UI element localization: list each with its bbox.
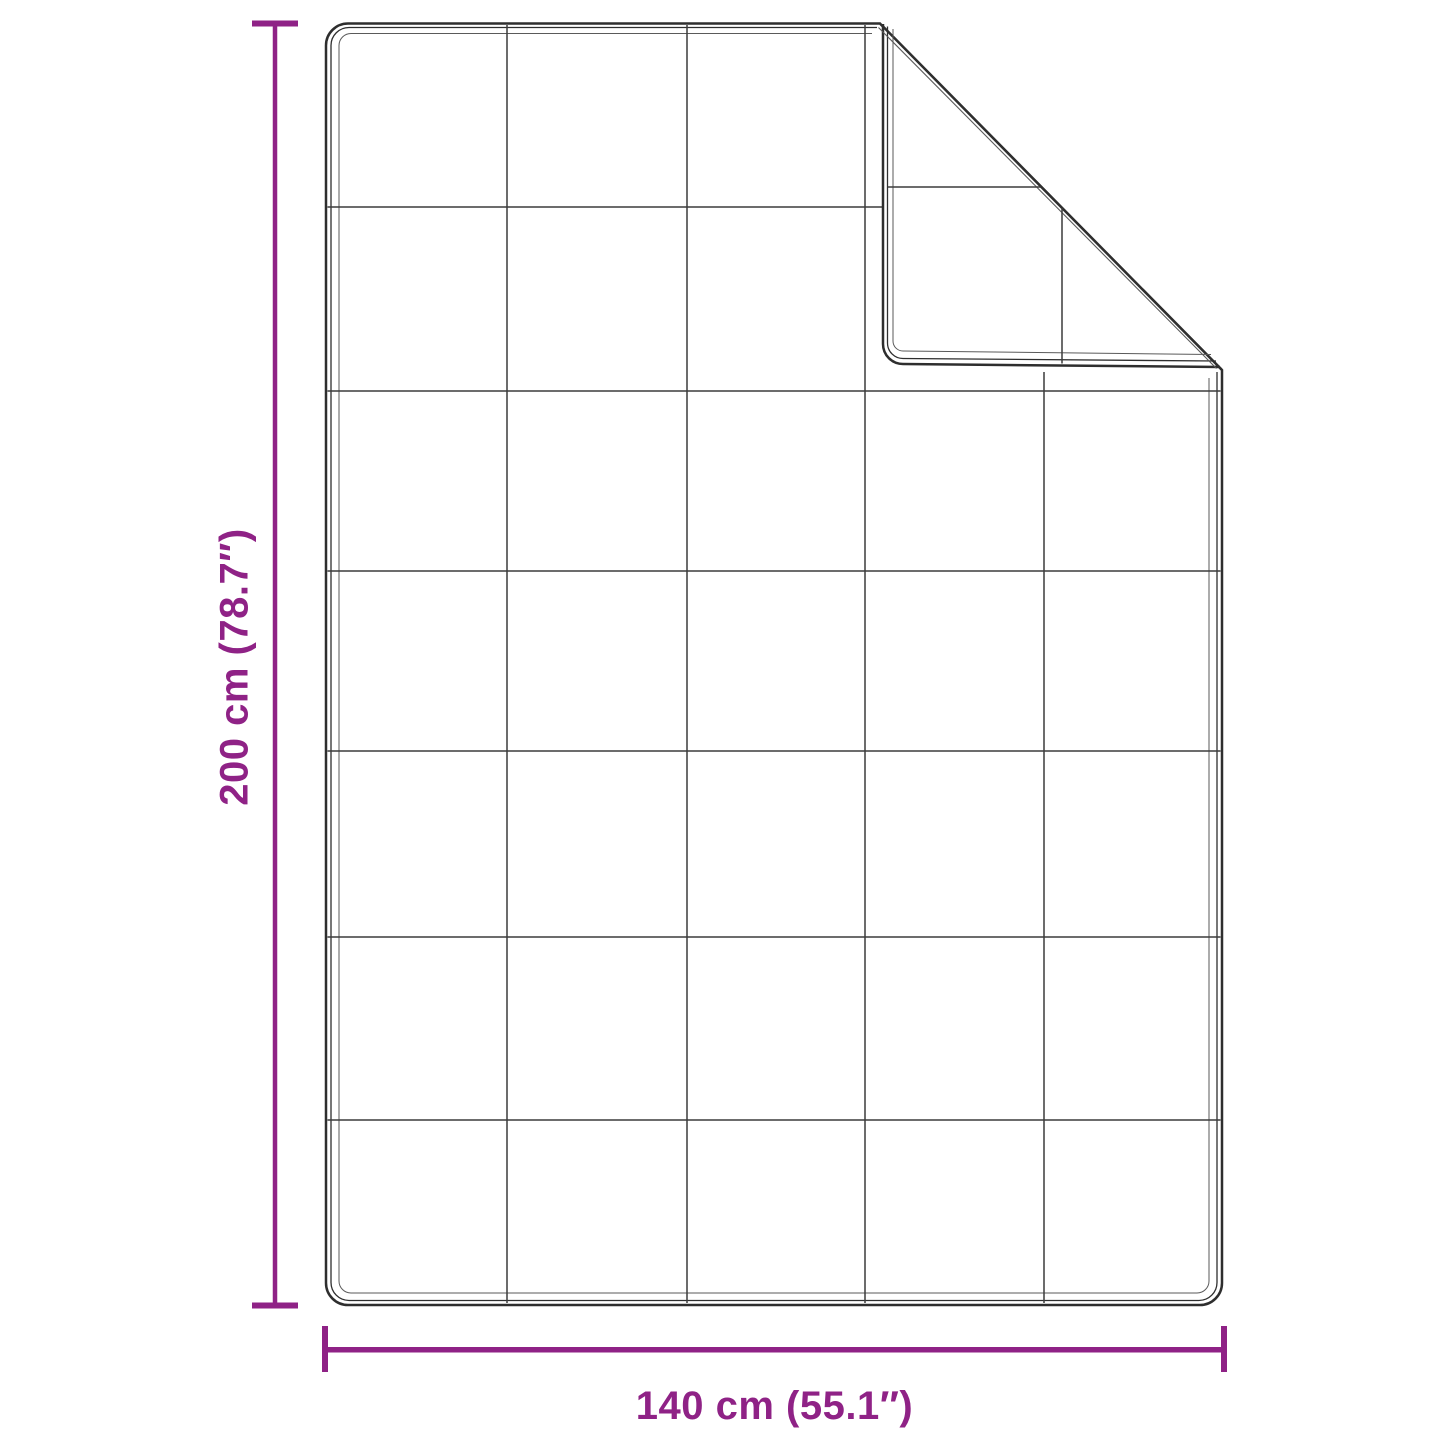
blanket-outline-group: [326, 24, 1222, 1306]
height-dimension-label: 200 cm (78.7″): [213, 528, 257, 805]
width-dimension-bar: [325, 1347, 1224, 1353]
width-dimension-line: 140 cm (55.1″): [322, 1326, 1227, 1428]
hem-stitch-line: [339, 34, 1209, 1294]
blanket-outline: [326, 24, 1222, 1306]
quilt-grid-group: [328, 25, 1221, 1303]
blanket-hem-band-line: [331, 28, 1217, 1301]
height-dimension-line: 200 cm (78.7″): [213, 21, 299, 1309]
width-dimension-cap-right: [1221, 1326, 1227, 1372]
blanket-drawing: [326, 23, 1222, 1305]
blanket-diagram-svg: 200 cm (78.7″) 140 cm (55.1″): [0, 0, 1445, 1445]
quilt-grid-lines: [328, 25, 1221, 1303]
height-dimension-cap-bottom: [252, 1303, 298, 1309]
width-dimension-label: 140 cm (55.1″): [636, 1384, 913, 1428]
height-dimension-bar: [273, 23, 278, 1305]
hem-stitch-group: [339, 34, 1209, 1294]
dimension-diagram: 200 cm (78.7″) 140 cm (55.1″): [0, 0, 1445, 1445]
folded-corner-flap: [879, 23, 1223, 370]
